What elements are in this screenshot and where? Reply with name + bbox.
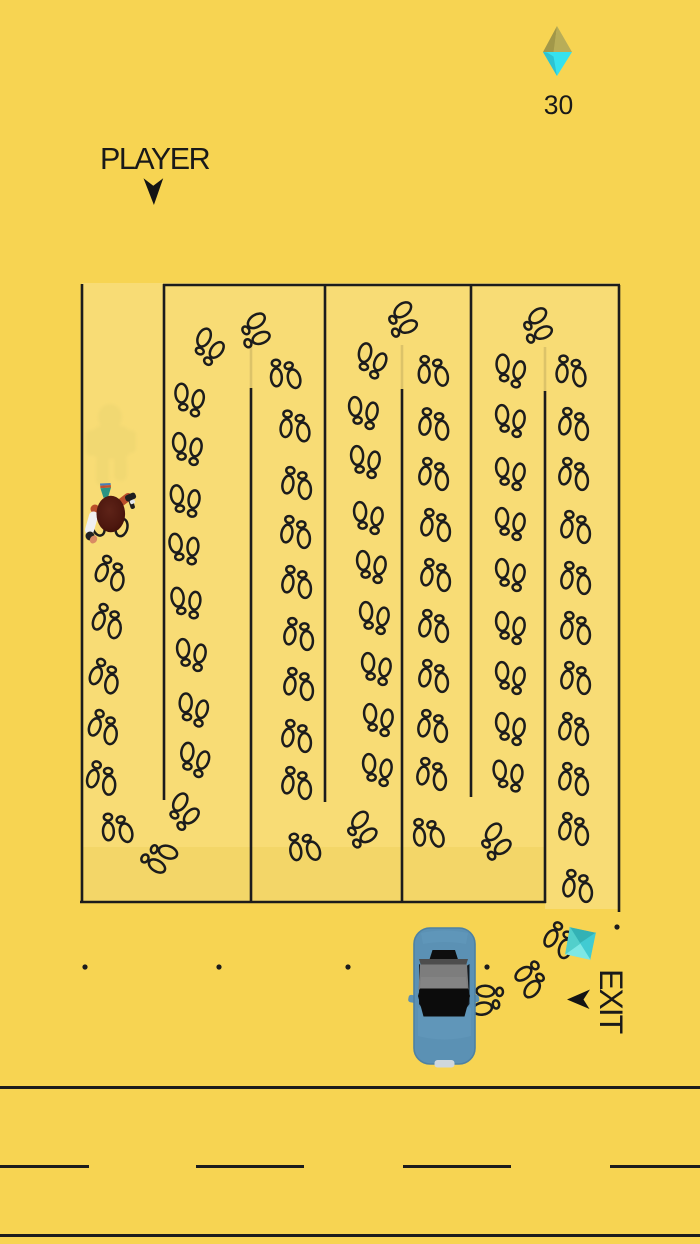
svg-text:30: 30 bbox=[544, 90, 573, 120]
svg-text:EXIT: EXIT bbox=[593, 969, 629, 1034]
svg-text:PLAYER: PLAYER bbox=[100, 142, 210, 176]
